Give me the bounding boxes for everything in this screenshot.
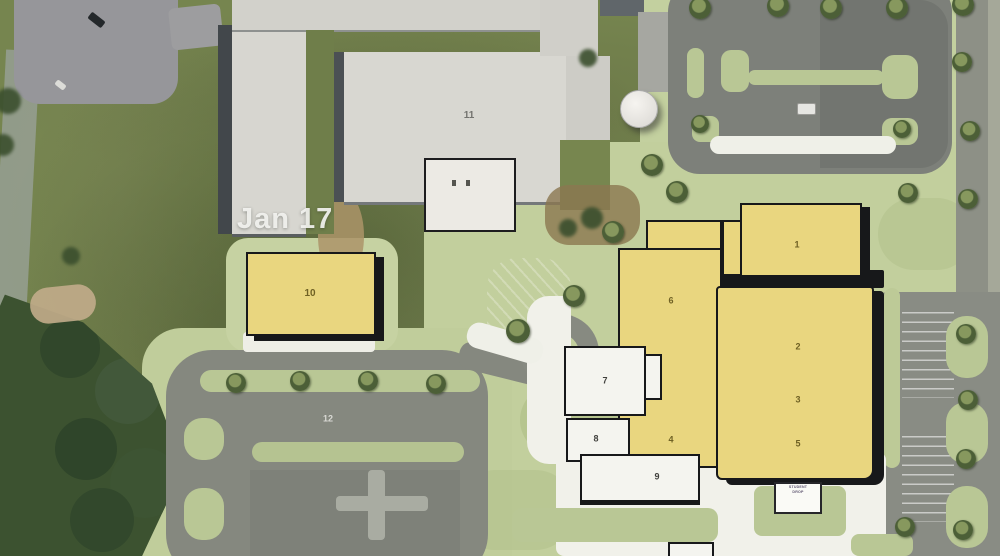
tree-icon bbox=[767, 0, 789, 17]
tree-icon bbox=[226, 373, 246, 393]
tree-icon bbox=[953, 520, 973, 540]
tree-icon bbox=[952, 0, 974, 16]
date-watermark: Jan 17 bbox=[237, 203, 333, 236]
building-7-label: 7 bbox=[602, 377, 607, 386]
tree-icon bbox=[691, 115, 709, 133]
building-4-label: 4 bbox=[668, 436, 673, 445]
building-3-label: 3 bbox=[795, 396, 800, 405]
tree-icon bbox=[893, 120, 911, 138]
tree-icon bbox=[956, 449, 976, 469]
tree-icon bbox=[895, 517, 915, 537]
tree-icon bbox=[820, 0, 842, 19]
building-10-label: 10 bbox=[304, 289, 315, 299]
building-6-label: 6 bbox=[668, 297, 673, 306]
tree-icon bbox=[886, 0, 908, 19]
tree-icon bbox=[898, 183, 918, 203]
building-1-label: 1 bbox=[794, 241, 799, 250]
tree-icon bbox=[563, 285, 585, 307]
tree-icon bbox=[960, 121, 980, 141]
building-2-label: 2 bbox=[795, 343, 800, 352]
tree-icon bbox=[602, 221, 624, 243]
tree-icon bbox=[958, 390, 978, 410]
tree-icon bbox=[958, 189, 978, 209]
tree-icon bbox=[666, 181, 688, 203]
tree-icon bbox=[290, 371, 310, 391]
tree-icon bbox=[952, 52, 972, 72]
tree-icon bbox=[956, 324, 976, 344]
building-5-label: 5 bbox=[795, 440, 800, 449]
parking-lot-label: 12 bbox=[323, 415, 333, 424]
building-9-label: 9 bbox=[654, 473, 659, 482]
building-11-label: 11 bbox=[464, 111, 475, 121]
tree-icon bbox=[426, 374, 446, 394]
tree-icon bbox=[641, 154, 663, 176]
tree-icon bbox=[358, 371, 378, 391]
tree-icon bbox=[506, 319, 530, 343]
tree-layer bbox=[0, 0, 1000, 556]
campus-site-plan-map: STUDENT DROP 1 2 3 5 6 4 7 8 9 10 11 12 … bbox=[0, 0, 1000, 556]
tree-icon bbox=[689, 0, 711, 19]
building-8-label: 8 bbox=[593, 435, 598, 444]
